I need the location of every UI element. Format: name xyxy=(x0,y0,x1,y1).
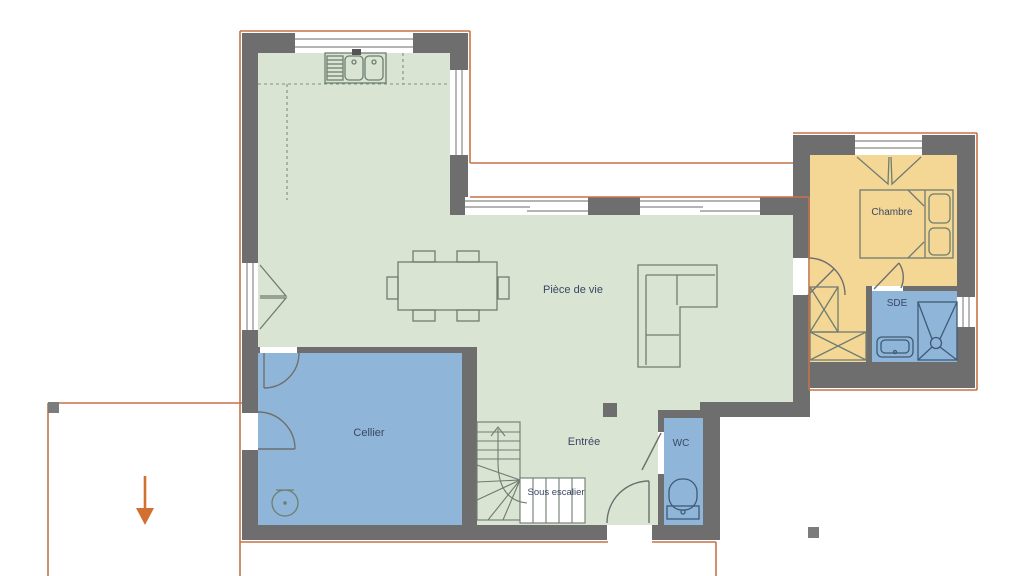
pantry-label: Cellier xyxy=(353,427,385,439)
shower-room-west-partition xyxy=(866,286,872,362)
annex-south-wall xyxy=(793,362,975,388)
east-exterior-wall xyxy=(957,135,975,388)
shower-room-window xyxy=(957,297,975,327)
floor-plan-page: Pièce de vie Chambre SDE Cellier Entrée … xyxy=(0,0,1024,576)
porch-post xyxy=(808,527,819,538)
living-bay-window-right xyxy=(640,197,760,215)
bedroom-label: Chambre xyxy=(871,207,913,218)
wc-north-wall xyxy=(658,410,720,418)
wc-label: WC xyxy=(673,438,690,449)
shower-room-label: SDE xyxy=(887,298,908,309)
carport-post xyxy=(48,402,59,413)
living-bay-window-left xyxy=(465,197,588,215)
front-door-step xyxy=(608,540,652,557)
pantry-east-wall xyxy=(462,347,477,540)
wall-stub xyxy=(603,403,617,417)
under-stairs-label: Sous escalier xyxy=(527,487,584,498)
entrance-label: Entrée xyxy=(568,436,600,448)
living-room-label: Pièce de vie xyxy=(543,284,603,296)
wc-floor xyxy=(664,418,703,525)
driveway-arrow xyxy=(136,476,154,525)
floor-plan-drawing: Pièce de vie Chambre SDE Cellier Entrée … xyxy=(0,0,1024,576)
kitchen-side-window xyxy=(450,70,468,155)
wc-east-exterior-wall xyxy=(703,402,720,540)
floors xyxy=(258,53,957,525)
faucet xyxy=(352,49,361,55)
under-stairs-area xyxy=(520,478,585,523)
annex-connector-wall xyxy=(793,388,810,404)
